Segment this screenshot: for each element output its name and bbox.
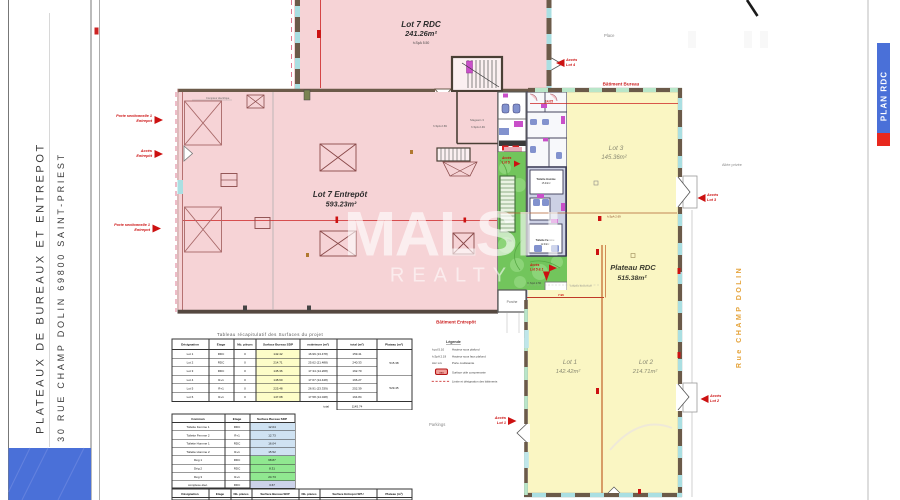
svg-text:Entrepot: Entrepot — [134, 228, 150, 232]
svg-text:Surface Bureau SDP: Surface Bureau SDP — [257, 417, 287, 421]
svg-text:Dég 3: Dég 3 — [194, 475, 202, 479]
svg-text:Désignation: Désignation — [181, 343, 199, 347]
svg-text:Porte sectionnelle 1: Porte sectionnelle 1 — [114, 223, 150, 227]
svg-text:16.99 (13.478): 16.99 (13.478) — [308, 352, 328, 356]
svg-text:Lot 7 RDC: Lot 7 RDC — [401, 20, 442, 29]
svg-text:17.58 (14.048): 17.58 (14.048) — [308, 395, 328, 399]
svg-text:Hauteur sous faux plafond: Hauteur sous faux plafond — [452, 355, 486, 359]
svg-text:Toilette Homme 1: Toilette Homme 1 — [186, 442, 210, 446]
svg-text:Lot 1: Lot 1 — [563, 359, 578, 366]
svg-text:Accès: Accès — [501, 156, 512, 160]
svg-text:252.39: 252.39 — [352, 386, 362, 390]
svg-text:166.27: 166.27 — [352, 378, 362, 382]
svg-text:compteur divisionnaire: compteur divisionnaire — [570, 285, 593, 288]
svg-text:RDC: RDC — [218, 352, 225, 356]
svg-text:Lot 3: Lot 3 — [609, 145, 624, 152]
svg-text:h.SpA 2.69: h.SpA 2.69 — [607, 215, 621, 219]
svg-text:Lot 7 Entrepôt: Lot 7 Entrepôt — [313, 190, 368, 199]
svg-text:1145.74: 1145.74 — [352, 405, 363, 409]
svg-text:Lot 3: Lot 3 — [187, 369, 194, 373]
svg-text:145.36m²: 145.36m² — [601, 155, 627, 161]
svg-text:26.91 (23.339): 26.91 (23.339) — [308, 386, 328, 390]
svg-text:147.08: 147.08 — [273, 395, 283, 399]
svg-text:Accès: Accès — [494, 416, 506, 420]
svg-text:Limite et désignation des bâti: Limite et désignation des bâtiments — [452, 380, 498, 384]
svg-text:h.SpA 2.19: h.SpA 2.19 — [432, 355, 447, 359]
svg-text:extérieure (m²): extérieure (m²) — [307, 343, 329, 347]
svg-text:Surface Bureau SDP: Surface Bureau SDP — [263, 343, 293, 347]
svg-text:3.67: 3.67 — [269, 483, 275, 487]
svg-text:15.52: 15.52 — [268, 450, 276, 454]
svg-text:R+1: R+1 — [218, 378, 224, 382]
svg-text:Entrepôt: Entrepôt — [136, 154, 152, 158]
svg-text:14.05: 14.05 — [545, 100, 553, 104]
svg-text:Lot 4: Lot 4 — [566, 63, 576, 67]
svg-text:Bâtiment Bureau: Bâtiment Bureau — [603, 82, 640, 87]
svg-text:30 RUE CHAMP DOLIN 69800 SAINT: 30 RUE CHAMP DOLIN 69800 SAINT-PRIEST — [56, 152, 66, 442]
svg-text:Lot 1: Lot 1 — [187, 352, 194, 356]
svg-text:7.96: 7.96 — [558, 293, 564, 297]
svg-text:Porche: Porche — [507, 300, 518, 304]
svg-text:Plateau (m²): Plateau (m²) — [385, 343, 403, 347]
svg-text:Nb. pièces: Nb. pièces — [237, 343, 253, 347]
svg-text:Surface utile comprenante: Surface utile comprenante — [452, 371, 486, 375]
svg-text:Acc xxx: Acc xxx — [432, 361, 443, 365]
svg-text:Toilette Femme 2: Toilette Femme 2 — [186, 433, 209, 437]
svg-text:Surface Bureau SDP: Surface Bureau SDP — [260, 492, 289, 496]
svg-text:xxx: xxx — [439, 371, 444, 374]
svg-text:Magasin 3: Magasin 3 — [470, 118, 484, 122]
svg-text:Compteur électrique: Compteur électrique — [206, 96, 230, 100]
svg-text:162.70: 162.70 — [352, 369, 362, 373]
svg-text:RDC: RDC — [234, 483, 241, 487]
svg-text:148.60: 148.60 — [273, 378, 283, 382]
svg-text:529.45: 529.45 — [389, 386, 399, 390]
svg-text:Porte coulissante: Porte coulissante — [452, 361, 475, 365]
svg-text:515.38m²: 515.38m² — [617, 275, 647, 282]
svg-text:h.pd 5.10: h.pd 5.10 — [432, 348, 444, 352]
svg-text:Dég 2: Dég 2 — [194, 467, 202, 471]
svg-text:total: total — [323, 405, 329, 409]
svg-text:Accès: Accès — [565, 58, 577, 62]
svg-text:Parkings: Parkings — [429, 422, 445, 427]
svg-text:RDC: RDC — [234, 458, 241, 462]
svg-text:Entrepot: Entrepot — [136, 119, 152, 123]
svg-text:241.26m²: 241.26m² — [404, 29, 437, 38]
svg-text:Toilette Homme: Toilette Homme — [536, 177, 556, 181]
svg-text:total (m²): total (m²) — [350, 343, 363, 347]
svg-text:24.73: 24.73 — [268, 475, 276, 479]
svg-text:h.SpA 2.50: h.SpA 2.50 — [528, 281, 542, 285]
svg-text:RDC: RDC — [234, 442, 241, 446]
svg-text:Plateau RDC: Plateau RDC — [610, 263, 656, 272]
svg-text:Lot 5: Lot 5 — [502, 161, 510, 165]
svg-text:Bâtiment Entrepôt: Bâtiment Entrepôt — [436, 320, 476, 325]
svg-text:PLATEAUX DE BUREAUX ET ENTREPO: PLATEAUX DE BUREAUX ET ENTREPOT — [35, 142, 47, 434]
svg-text:Lot 4: Lot 4 — [187, 378, 194, 382]
svg-text:Accès: Accès — [140, 149, 152, 153]
svg-text:17.34 (14.208): 17.34 (14.208) — [308, 369, 328, 373]
svg-text:Commun: Commun — [191, 417, 205, 421]
svg-text:Etage: Etage — [216, 492, 225, 496]
svg-text:Dég 1: Dég 1 — [194, 458, 202, 462]
svg-text:Etage: Etage — [233, 417, 242, 421]
svg-text:MALSH: MALSH — [344, 200, 560, 270]
svg-text:h.SpA 2.69: h.SpA 2.69 — [433, 124, 447, 128]
svg-text:R+1: R+1 — [218, 395, 224, 399]
svg-text:Nb. pièces: Nb. pièces — [233, 492, 248, 496]
svg-text:REALTY: REALTY — [390, 265, 514, 287]
svg-text:225.48: 225.48 — [273, 386, 283, 390]
svg-text:Toilette Homme 2: Toilette Homme 2 — [186, 450, 210, 454]
svg-text:Lot 2: Lot 2 — [187, 361, 194, 365]
svg-text:Nb. pièces: Nb. pièces — [301, 492, 316, 496]
svg-text:25.62 (21.488): 25.62 (21.488) — [308, 361, 328, 365]
svg-text:68.87: 68.87 — [268, 458, 276, 462]
svg-text:214.71m²: 214.71m² — [632, 369, 659, 375]
svg-text:Lot 5: Lot 5 — [187, 386, 194, 390]
svg-text:Lot 1: Lot 1 — [497, 421, 506, 425]
svg-text:Lot 2: Lot 2 — [710, 399, 720, 403]
svg-text:Légende: Légende — [446, 340, 461, 344]
svg-text:RDC: RDC — [234, 467, 241, 471]
svg-text:Allée privée: Allée privée — [722, 163, 742, 167]
svg-text:complexe élec.: complexe élec. — [188, 483, 208, 487]
svg-text:Tableau récapitulatif des S: Tableau récapitulatif des Surfaces du pr… — [217, 332, 323, 337]
svg-text:214.71: 214.71 — [273, 361, 283, 365]
svg-text:Lot 6: Lot 6 — [187, 395, 194, 399]
svg-text:145.36: 145.36 — [273, 369, 283, 373]
svg-text:15.04m²: 15.04m² — [542, 182, 551, 185]
svg-text:17.67 (14.448): 17.67 (14.448) — [308, 378, 328, 382]
svg-text:Place: Place — [604, 33, 615, 38]
svg-text:PLAN RDC: PLAN RDC — [880, 71, 889, 121]
svg-text:R+1: R+1 — [234, 475, 240, 479]
svg-text:h.SpA 5.50: h.SpA 5.50 — [413, 41, 430, 45]
svg-text:Accès: Accès — [706, 193, 718, 197]
svg-text:240.33: 240.33 — [352, 361, 362, 365]
svg-text:Désignation: Désignation — [181, 492, 198, 496]
svg-text:Plateau (m²): Plateau (m²) — [385, 492, 402, 496]
svg-text:142.42m²: 142.42m² — [556, 369, 582, 375]
svg-text:142.42: 142.42 — [273, 352, 283, 356]
svg-text:16.04: 16.04 — [268, 442, 276, 446]
svg-text:h.SpA 2.49: h.SpA 2.49 — [471, 125, 485, 129]
svg-text:Porte sectionnelle 1: Porte sectionnelle 1 — [116, 114, 152, 118]
svg-text:R+1: R+1 — [218, 386, 224, 390]
svg-text:Lot 2: Lot 2 — [639, 359, 654, 366]
svg-text:Etage: Etage — [217, 343, 226, 347]
svg-text:12.73: 12.73 — [268, 433, 276, 437]
svg-text:Toilette Femme 1: Toilette Femme 1 — [186, 425, 209, 429]
svg-text:164.84: 164.84 — [352, 395, 362, 399]
svg-text:12.04: 12.04 — [268, 425, 276, 429]
svg-text:515.38: 515.38 — [389, 361, 399, 365]
svg-text:R+1: R+1 — [234, 433, 240, 437]
svg-text:8.31: 8.31 — [269, 467, 275, 471]
svg-text:Hauteur sous plafond: Hauteur sous plafond — [452, 348, 480, 352]
svg-text:Lot 3: Lot 3 — [707, 198, 717, 202]
svg-text:Accès: Accès — [709, 394, 721, 398]
svg-text:159.41: 159.41 — [352, 352, 362, 356]
svg-text:RDC: RDC — [218, 361, 225, 365]
svg-text:Rue CHAMP DOLIN: Rue CHAMP DOLIN — [734, 266, 743, 368]
svg-text:RDC: RDC — [218, 369, 225, 373]
svg-text:RDC: RDC — [234, 425, 241, 429]
svg-text:Surface Entrepot SPU: Surface Entrepot SPU — [332, 492, 363, 496]
svg-text:R+1: R+1 — [234, 450, 240, 454]
